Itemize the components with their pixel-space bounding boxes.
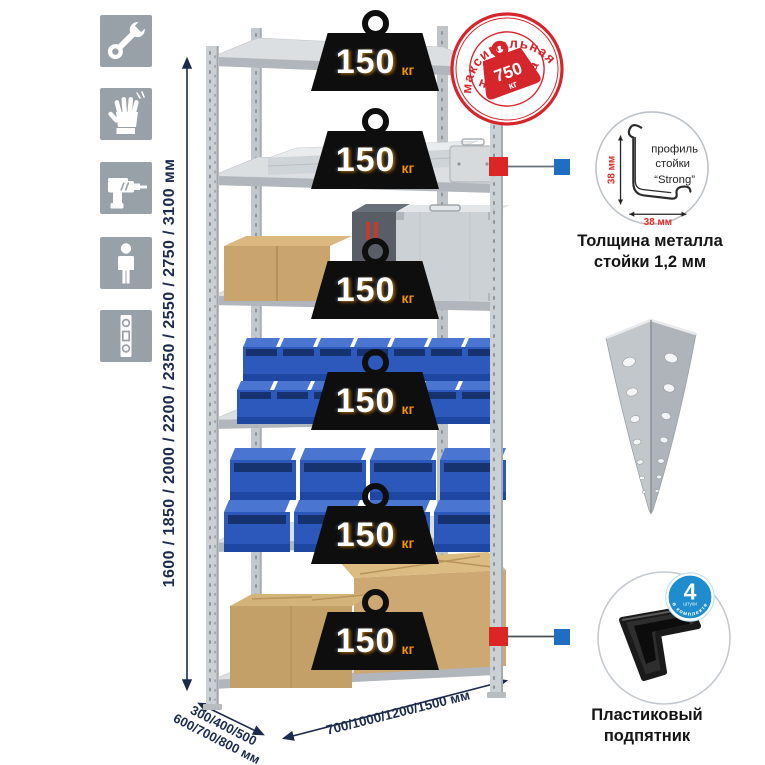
- drill-icon: [100, 162, 152, 214]
- shelf-load-badge-3: 150кг: [311, 238, 439, 319]
- weight-handle-icon: [362, 238, 389, 265]
- load-value: 150: [336, 43, 396, 82]
- profile-caption-line1: Толщина металла: [545, 231, 755, 252]
- load-unit: кг: [401, 535, 414, 551]
- shelf-load-badge-2: 150кг: [311, 108, 439, 189]
- load-unit: кг: [401, 290, 414, 306]
- foot-caption-line2: подпятник: [542, 726, 752, 747]
- foot-caption-line1: Пластиковый: [542, 705, 752, 726]
- kit-quantity-badge: 4 штуки в комплекте: [665, 572, 715, 622]
- profile-label-1: профиль: [651, 143, 698, 155]
- shelf-load-badge-1: 150кг: [311, 10, 439, 91]
- load-value: 150: [336, 382, 396, 421]
- wrench-icon: [100, 15, 152, 67]
- load-unit: кг: [401, 641, 414, 657]
- load-unit: кг: [401, 401, 414, 417]
- person-icon: [100, 237, 152, 289]
- weight-handle-icon: [362, 589, 389, 616]
- profile-callout-connector: [489, 157, 570, 176]
- profile-dim-vertical: 38 мм: [607, 156, 618, 184]
- weight-handle-icon: [362, 10, 389, 37]
- profile-label-3: “Strong”: [654, 174, 695, 186]
- shelf-load-badge-5: 150кг: [311, 483, 439, 564]
- load-unit: кг: [401, 62, 414, 78]
- profile-dim-horizontal: 38 мм: [644, 217, 672, 228]
- load-unit: кг: [401, 160, 414, 176]
- profile-caption: Толщина металла стойки 1,2 мм: [545, 231, 755, 273]
- shelf-load-badge-4: 150кг: [311, 349, 439, 430]
- shelf-load-badge-6: 150кг: [311, 589, 439, 670]
- load-value: 150: [336, 141, 396, 180]
- load-value: 150: [336, 271, 396, 310]
- profile-label-2: стойки: [655, 158, 690, 170]
- foot-caption: Пластиковый подпятник: [542, 705, 752, 747]
- weight-handle-icon: [362, 108, 389, 135]
- level-icon: [100, 310, 152, 362]
- product-infographic: 150кг 150кг 150кг 150кг 150кг 150кг: [0, 0, 765, 765]
- kit-badge-sub: штуки: [683, 602, 697, 608]
- profile-caption-line2: стойки 1,2 мм: [545, 252, 755, 273]
- weight-handle-icon: [362, 483, 389, 510]
- weight-handle-icon: [362, 349, 389, 376]
- load-value: 150: [336, 516, 396, 555]
- height-dimension-label: 1600 / 1850 / 2000 / 2200 / 2350 / 2550 …: [161, 48, 181, 698]
- gloves-icon: [100, 88, 152, 140]
- angle-post-image: [596, 312, 706, 524]
- load-value: 150: [336, 622, 396, 661]
- profile-detail-circle: 38 мм 38 мм профиль стойки “Strong”: [592, 108, 712, 228]
- foot-callout-connector: [489, 627, 570, 646]
